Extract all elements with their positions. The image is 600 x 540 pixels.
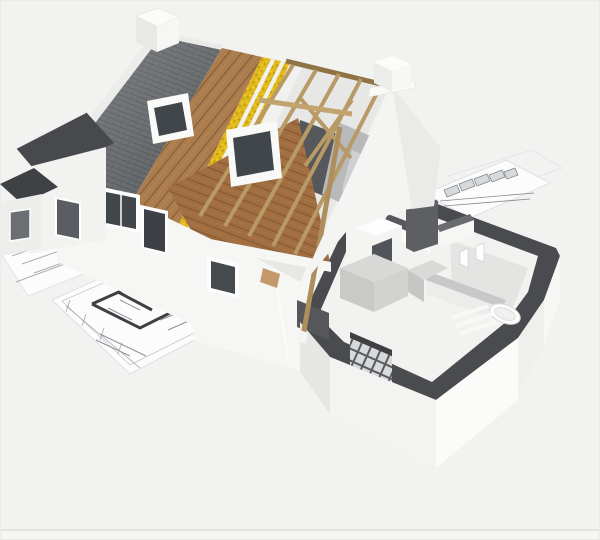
table-edge-line — [0, 529, 600, 531]
house-cutaway-render — [0, 0, 600, 540]
door-dark — [144, 209, 165, 252]
rendered-image — [0, 0, 600, 540]
skylight-glass — [154, 102, 187, 136]
bay-window — [10, 209, 30, 241]
bay-window-glass — [233, 131, 274, 177]
door-leaf — [476, 243, 484, 262]
table-edge-strip — [0, 531, 600, 540]
wing-window — [56, 198, 80, 240]
